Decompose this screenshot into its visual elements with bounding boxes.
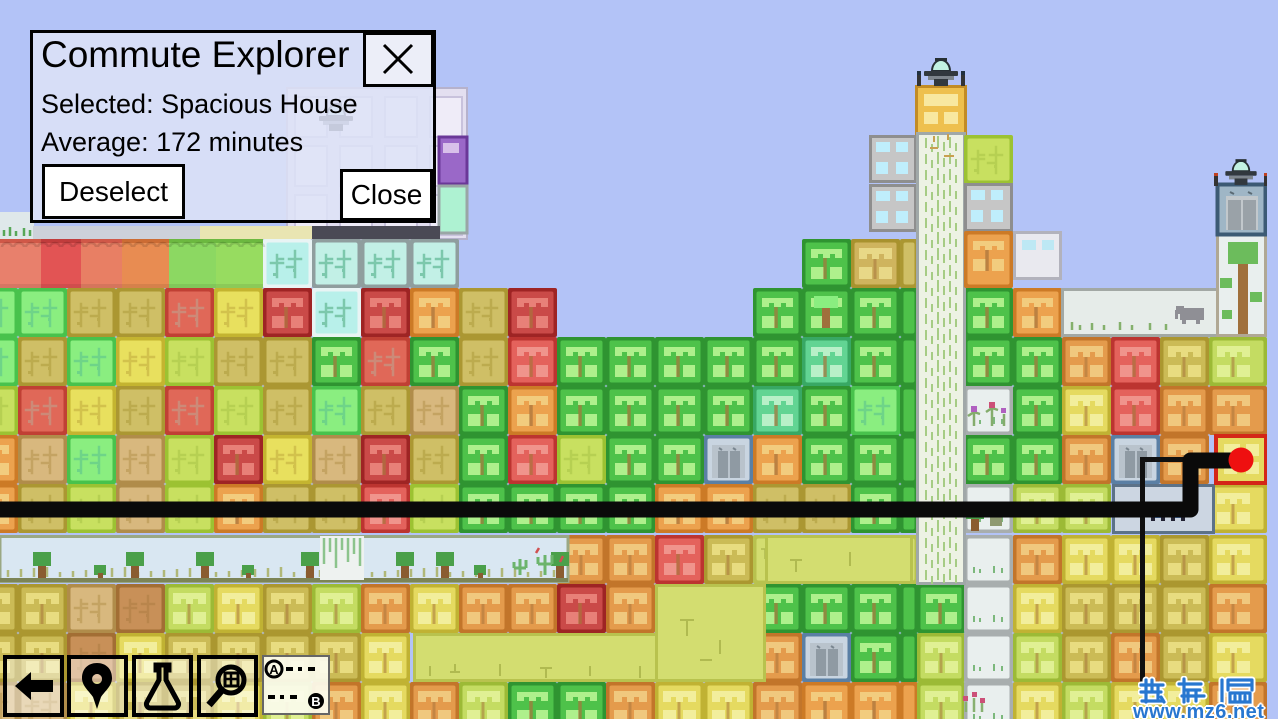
svg-text:A: A [269,662,279,677]
svg-text:B: B [311,694,320,709]
